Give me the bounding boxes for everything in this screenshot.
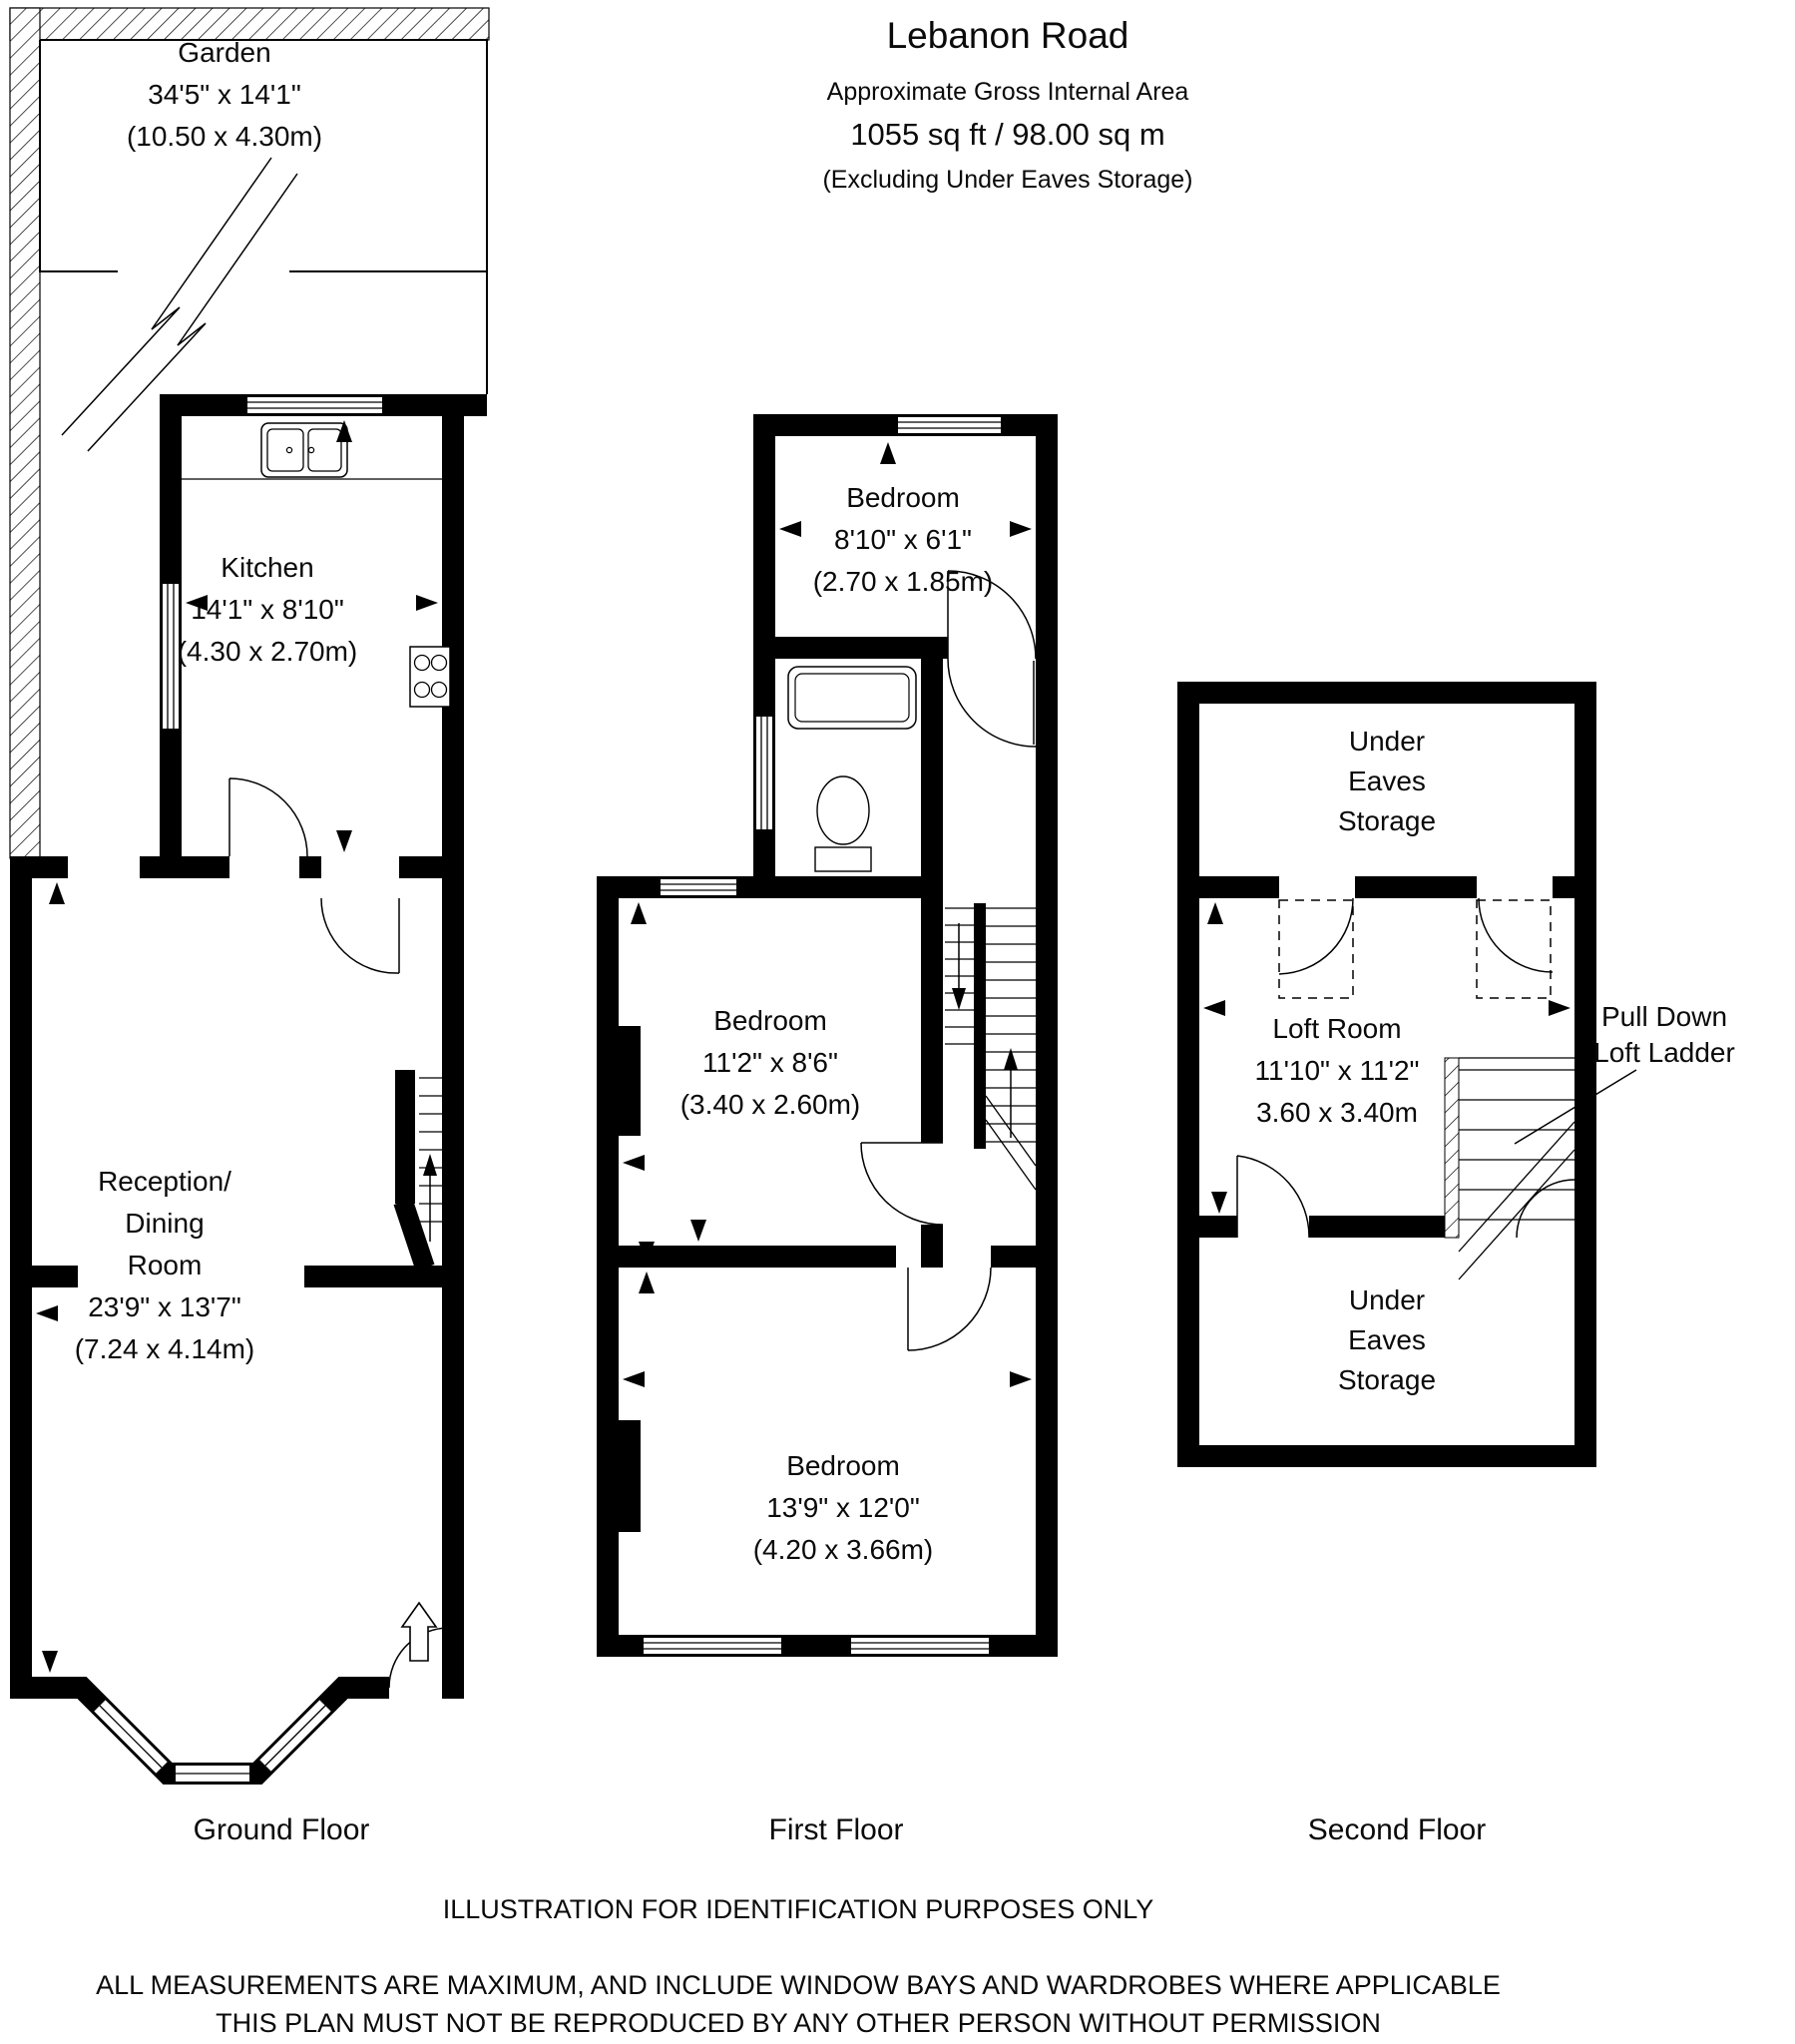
bathroom-window xyxy=(756,717,772,829)
storage-top-label: Under Eaves Storage xyxy=(1338,726,1436,836)
kitchen-reception-door xyxy=(321,898,399,973)
dimension-arrow-right-icon xyxy=(1549,1000,1571,1016)
loft-room-label: Loft Room 11'10" x 11'2" 3.60 x 3.40m xyxy=(1255,1013,1420,1128)
dimension-arrow-up-icon xyxy=(1207,902,1223,924)
room-name: Room xyxy=(128,1250,203,1280)
room-name: Storage xyxy=(1338,805,1436,836)
room-name: Under xyxy=(1349,1284,1425,1315)
room-name: Eaves xyxy=(1348,766,1426,796)
first-floor-label: First Floor xyxy=(769,1813,904,1846)
bedroom-middle-door xyxy=(861,1143,943,1225)
room-name: Under xyxy=(1349,726,1425,757)
stairs-up-arrow-icon xyxy=(423,1154,437,1176)
floorplan-page: Lebanon Road Approximate Gross Internal … xyxy=(0,0,1795,2044)
landing-door xyxy=(948,659,1036,747)
dimension-arrow-right-icon xyxy=(416,595,438,611)
room-name: Bedroom xyxy=(786,1450,900,1481)
first-floor-stairs xyxy=(945,903,1036,1190)
room-name: Kitchen xyxy=(221,552,313,583)
dimension-arrow-left-icon xyxy=(1203,1000,1225,1016)
room-size-metric: (4.30 x 2.70m) xyxy=(178,636,358,667)
plan-area: 1055 sq ft / 98.00 sq m xyxy=(850,117,1164,152)
loft-room-door xyxy=(1237,1156,1309,1238)
plan-subtitle: Approximate Gross Internal Area xyxy=(827,78,1189,106)
room-size-metric: (4.20 x 3.66m) xyxy=(753,1534,934,1565)
bedroom-middle-label: Bedroom 11'2" x 8'6" (3.40 x 2.60m) xyxy=(680,1005,861,1120)
bay-window xyxy=(10,1688,389,1774)
room-name: Loft Room xyxy=(1272,1013,1401,1044)
footer-disclaimer: ILLUSTRATION FOR IDENTIFICATION PURPOSES… xyxy=(443,1894,1154,1924)
entrance-arrow-icon xyxy=(402,1603,436,1661)
ladder-label: Pull Down Loft Ladder xyxy=(1593,1001,1735,1068)
room-size-imperial: 23'9" x 13'7" xyxy=(88,1291,241,1322)
reception-label: Reception/ Dining Room 23'9" x 13'7" (7.… xyxy=(75,1166,255,1364)
room-name: Eaves xyxy=(1348,1324,1426,1355)
bedroom-top-window xyxy=(898,417,1001,433)
ladder-label-line: Loft Ladder xyxy=(1593,1037,1735,1068)
dimension-arrow-up-icon xyxy=(631,902,647,924)
garden-label: Garden 34'5" x 14'1" (10.50 x 4.30m) xyxy=(127,37,322,152)
footer-copyright: THIS PLAN MUST NOT BE REPRODUCED BY ANY … xyxy=(216,2008,1381,2038)
dimension-arrow-up-icon xyxy=(880,442,896,464)
reception-walls xyxy=(10,856,464,1699)
toilet xyxy=(815,776,871,871)
dimension-arrow-left-icon xyxy=(779,521,801,537)
kitchen-door xyxy=(229,778,307,856)
stairs-down-arrow-icon xyxy=(952,988,966,1010)
room-size-metric: (3.40 x 2.60m) xyxy=(680,1089,861,1120)
room-size-imperial: 34'5" x 14'1" xyxy=(148,79,301,110)
dimension-arrow-left-icon xyxy=(623,1155,645,1171)
understairs-wall xyxy=(403,1202,425,1268)
room-name: Bedroom xyxy=(713,1005,827,1036)
kitchen-hob xyxy=(410,647,450,707)
ground-floor-label: Ground Floor xyxy=(194,1813,370,1846)
footer-measurements: ALL MEASUREMENTS ARE MAXIMUM, AND INCLUD… xyxy=(96,1970,1501,2000)
room-name: Bedroom xyxy=(846,482,960,513)
room-size-imperial: 13'9" x 12'0" xyxy=(766,1492,920,1523)
room-name: Dining xyxy=(125,1208,204,1239)
bedroom-bottom-label: Bedroom 13'9" x 12'0" (4.20 x 3.66m) xyxy=(753,1450,934,1565)
bath-tub xyxy=(788,667,916,729)
stairs-up-arrow-icon xyxy=(1004,1048,1018,1070)
eaves-storage-doors xyxy=(1279,898,1553,998)
room-size-metric: (2.70 x 1.85m) xyxy=(813,566,994,597)
room-size-imperial: 8'10" x 6'1" xyxy=(834,524,972,555)
plan-footer: ILLUSTRATION FOR IDENTIFICATION PURPOSES… xyxy=(96,1894,1501,2038)
room-name: Garden xyxy=(178,37,270,68)
ground-floor-stairs xyxy=(419,1078,442,1242)
dimension-arrow-up-icon xyxy=(49,882,65,904)
kitchen-window-left xyxy=(163,584,179,729)
room-size-imperial: 11'10" x 11'2" xyxy=(1255,1055,1420,1086)
room-size-imperial: 11'2" x 8'6" xyxy=(702,1047,838,1078)
dimension-arrow-right-icon xyxy=(1010,521,1032,537)
dimension-arrow-down-icon xyxy=(1211,1192,1227,1214)
floorplan-drawing: Lebanon Road Approximate Gross Internal … xyxy=(0,0,1795,2044)
storage-bottom-label: Under Eaves Storage xyxy=(1338,1284,1436,1395)
bedroom-top-label: Bedroom 8'10" x 6'1" (2.70 x 1.85m) xyxy=(813,482,994,597)
second-floor-plan: Under Eaves Storage Loft Room 11'10" x 1… xyxy=(1177,682,1735,1846)
room-name: Reception/ xyxy=(98,1166,231,1197)
dimension-arrow-down-icon xyxy=(690,1220,706,1242)
bedroom-middle-window xyxy=(661,879,736,895)
dimension-arrow-down-icon xyxy=(336,830,352,852)
plan-header: Lebanon Road Approximate Gross Internal … xyxy=(822,15,1192,194)
room-size-metric: (10.50 x 4.30m) xyxy=(127,121,322,152)
ladder-bottom-door xyxy=(1517,1180,1574,1238)
room-size-imperial: 14'1" x 8'10" xyxy=(191,594,344,625)
bedroom-bottom-door xyxy=(908,1268,991,1350)
kitchen-window-top xyxy=(247,397,382,413)
plan-note: (Excluding Under Eaves Storage) xyxy=(822,166,1192,194)
dimension-arrow-right-icon xyxy=(1010,1371,1032,1387)
first-floor-plan: Bedroom 8'10" x 6'1" (2.70 x 1.85m) Bedr… xyxy=(597,414,1058,1846)
dimension-arrow-left-icon xyxy=(623,1371,645,1387)
room-size-metric: 3.60 x 3.40m xyxy=(1256,1097,1418,1128)
plan-title: Lebanon Road xyxy=(887,15,1129,56)
loft-ladder xyxy=(1445,1058,1574,1279)
dimension-arrow-down-icon xyxy=(42,1651,58,1673)
entrance-door xyxy=(389,1603,449,1688)
ladder-label-line: Pull Down xyxy=(1601,1001,1727,1032)
room-size-metric: (7.24 x 4.14m) xyxy=(75,1333,255,1364)
kitchen-sink xyxy=(261,423,347,477)
dimension-arrow-up-icon xyxy=(639,1272,655,1293)
room-name: Storage xyxy=(1338,1364,1436,1395)
dimension-arrow-left-icon xyxy=(36,1305,58,1321)
second-floor-label: Second Floor xyxy=(1308,1813,1486,1846)
ground-floor-plan: Garden 34'5" x 14'1" (10.50 x 4.30m) xyxy=(10,8,489,1846)
